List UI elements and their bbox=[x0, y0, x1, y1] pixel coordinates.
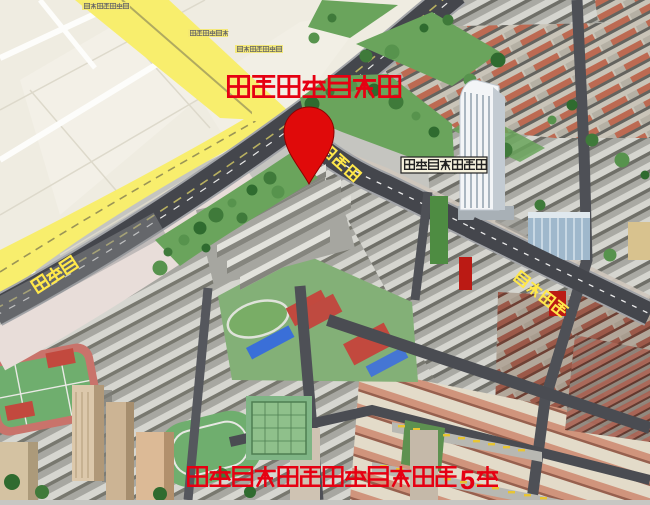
svg-text:5: 5 bbox=[460, 465, 475, 495]
